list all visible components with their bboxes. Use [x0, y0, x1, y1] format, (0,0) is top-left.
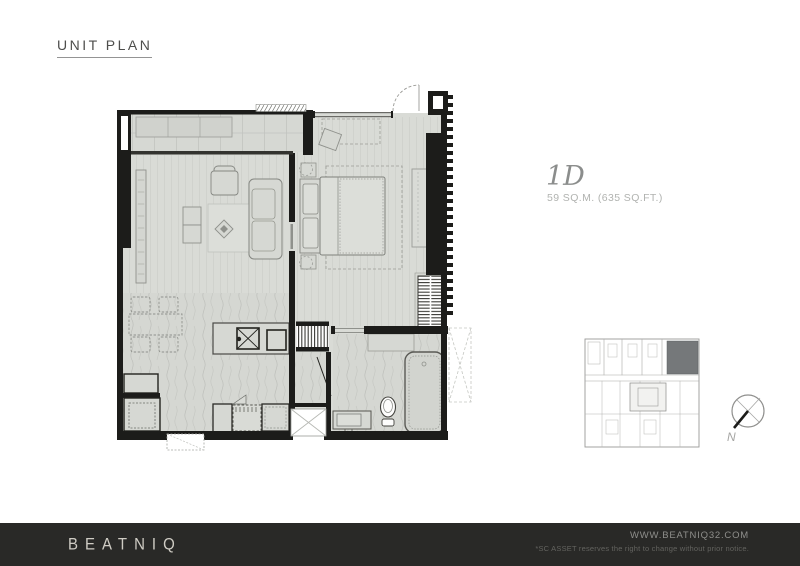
unit-name: 1D: [546, 161, 585, 192]
toilet: [381, 397, 396, 417]
compass-icon: [732, 395, 764, 428]
key-plan-highlighted-unit: [667, 341, 698, 374]
pillow: [303, 218, 318, 248]
key-plan: [585, 339, 699, 447]
coffee-table: [183, 207, 201, 225]
faucet: [237, 337, 241, 341]
building-core: [630, 383, 666, 411]
foyer-cabinets: [122, 374, 160, 431]
disclaimer-text: *SC ASSET reserves the right to change w…: [535, 544, 749, 553]
compass-north-label: N: [727, 430, 736, 444]
footer-bar: BEATNIQ WWW.BEATNIQ32.COM *SC ASSET rese…: [0, 523, 800, 566]
floorplan-group: [117, 85, 471, 450]
shelf: [136, 170, 146, 283]
refrigerator: [233, 405, 261, 431]
pillow: [303, 184, 318, 214]
bed: [320, 177, 385, 255]
hall-shelf: [368, 334, 414, 351]
armchair: [211, 171, 238, 195]
utility-closet: [296, 322, 329, 352]
brand-logo: BEATNIQ: [68, 535, 182, 554]
unit-plan-page: { "header": { "title": "UNIT PLAN" }, "u…: [0, 0, 800, 566]
bathtub: [405, 352, 444, 433]
balcony-bench: [136, 117, 232, 137]
ac-ledge: [167, 434, 204, 450]
door-swing-arc: [393, 85, 419, 111]
footer-right: WWW.BEATNIQ32.COM *SC ASSET reserves the…: [535, 530, 749, 553]
website-url: WWW.BEATNIQ32.COM: [535, 530, 749, 541]
unit-area: 59 SQ.M. (635 SQ.FT.): [547, 192, 663, 204]
balcony: [131, 113, 307, 152]
cooktop: [267, 330, 286, 350]
floor-plan-drawing: [0, 0, 800, 523]
wardrobe: [415, 273, 443, 330]
